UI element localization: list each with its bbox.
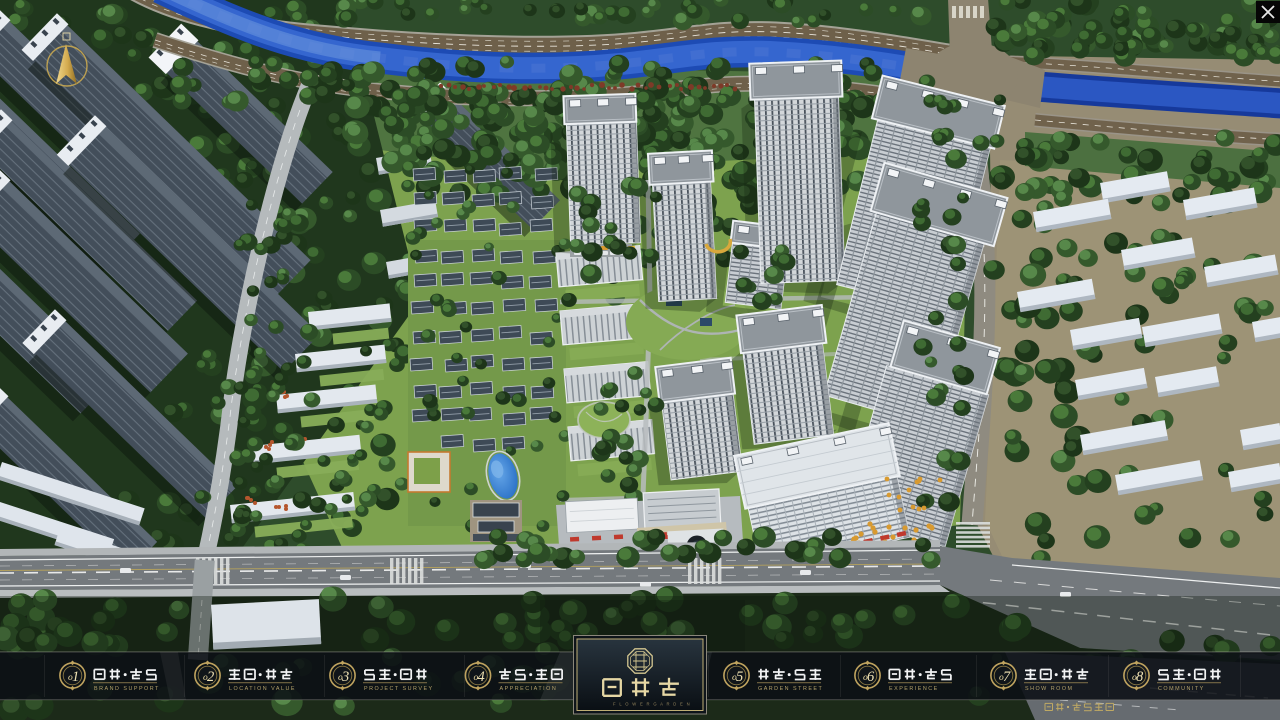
svg-text:2: 2 [207, 669, 214, 685]
svg-text:APPRECIATION: APPRECIATION [500, 686, 558, 692]
svg-text:EXPERIENCE: EXPERIENCE [889, 686, 939, 692]
svg-text:8: 8 [1136, 669, 1144, 685]
svg-text:SHOW ROOM: SHOW ROOM [1025, 686, 1074, 692]
svg-text:3: 3 [341, 669, 349, 685]
svg-text:7: 7 [1003, 669, 1011, 685]
svg-text:F L O W E R G A R D E N: F L O W E R G A R D E N [613, 702, 691, 707]
svg-text:LOCATION VALUE: LOCATION VALUE [229, 686, 296, 692]
svg-text:6: 6 [867, 669, 875, 685]
svg-text:GARDEN STREET: GARDEN STREET [758, 686, 823, 692]
svg-text:4: 4 [478, 669, 485, 685]
svg-text:PROJECT SURVEY: PROJECT SURVEY [364, 686, 434, 692]
svg-text:5: 5 [736, 669, 743, 685]
svg-text:1: 1 [72, 669, 79, 685]
svg-text:BRAND SUPPORT: BRAND SUPPORT [94, 686, 160, 692]
svg-text:COMMUNITY: COMMUNITY [1158, 686, 1205, 692]
